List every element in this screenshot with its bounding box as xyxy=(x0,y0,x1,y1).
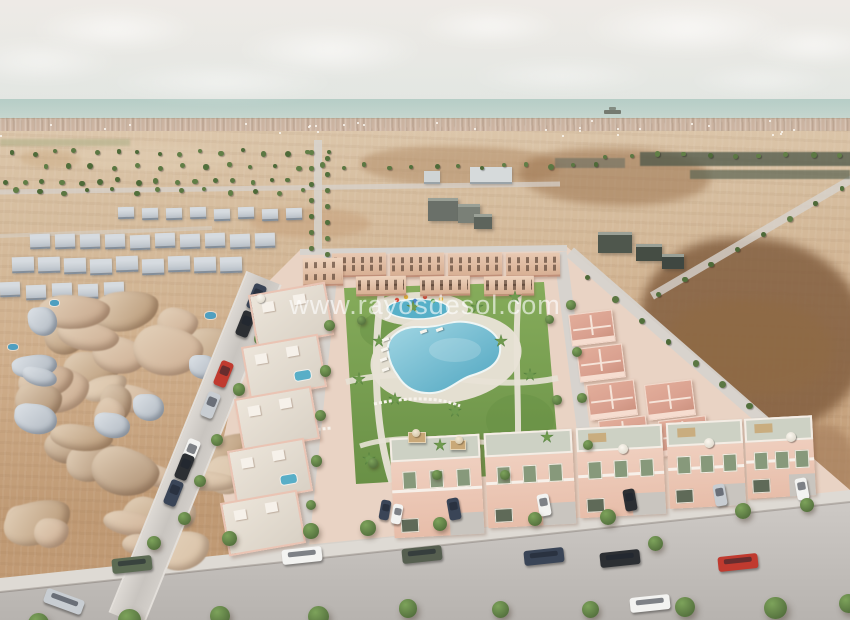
townhouse xyxy=(116,256,139,273)
roof-structure xyxy=(247,405,261,417)
field-tree xyxy=(253,189,258,194)
shuttered-window xyxy=(754,452,769,471)
parked-car xyxy=(401,545,442,564)
field-tree xyxy=(95,150,100,155)
tree xyxy=(577,393,587,403)
townhouse xyxy=(30,234,51,250)
field-tree xyxy=(309,230,314,235)
field-tree xyxy=(228,190,234,196)
backyard-pool xyxy=(50,300,59,306)
garage-door xyxy=(753,479,772,494)
palm-tree xyxy=(388,392,402,406)
distant-building xyxy=(363,124,365,126)
tree xyxy=(194,475,206,487)
parked-car xyxy=(717,553,758,572)
townhouse xyxy=(286,208,302,221)
tree xyxy=(360,520,376,536)
existing-roof-mesh xyxy=(133,394,165,421)
townhouse xyxy=(64,258,87,275)
field-tree xyxy=(325,188,330,193)
townhouse xyxy=(118,207,134,220)
field-tree xyxy=(85,188,89,192)
field-tree xyxy=(39,179,44,184)
field-tree xyxy=(87,163,93,169)
distant-building xyxy=(545,129,547,131)
field-tree xyxy=(37,189,43,195)
tree xyxy=(178,512,191,525)
distant-building xyxy=(562,135,564,137)
field-tree xyxy=(325,220,330,225)
tree xyxy=(324,320,335,331)
field-tree xyxy=(79,181,85,187)
car-window xyxy=(606,552,634,560)
field-tree xyxy=(309,166,314,171)
townhouse xyxy=(90,258,113,275)
car-window xyxy=(118,558,146,566)
shuttered-window xyxy=(639,458,654,477)
field-tree xyxy=(158,166,163,171)
villa-pitched-roof xyxy=(576,343,626,382)
terrace-parasol xyxy=(618,444,628,454)
field-tree xyxy=(97,179,103,185)
distant-building xyxy=(639,128,641,130)
field-tree xyxy=(327,150,332,155)
tree xyxy=(315,410,326,421)
apartment-block xyxy=(506,253,560,278)
cloud xyxy=(105,62,340,102)
villa-facade xyxy=(576,424,667,518)
tree xyxy=(368,458,378,468)
field-tree xyxy=(153,178,159,184)
field-tree xyxy=(198,149,202,153)
field-tree xyxy=(230,178,235,183)
field-tree xyxy=(71,148,76,153)
townhouse xyxy=(26,285,47,301)
field-tree xyxy=(59,180,64,185)
car-window xyxy=(219,365,231,377)
field-tree xyxy=(270,178,275,183)
field-tree xyxy=(285,151,291,157)
townhouse xyxy=(155,233,176,249)
tree xyxy=(600,509,616,525)
tree xyxy=(308,606,329,620)
field-tree xyxy=(325,156,330,161)
field-tree xyxy=(840,186,845,191)
field-tree xyxy=(681,152,686,157)
parked-car xyxy=(281,546,322,565)
field-tree xyxy=(61,191,67,197)
backyard-pool xyxy=(205,312,216,319)
grey-building xyxy=(636,244,662,261)
car-window xyxy=(179,458,191,470)
townhouse xyxy=(262,208,278,221)
field-tree xyxy=(811,152,817,158)
roof-terrace xyxy=(484,429,573,458)
tree xyxy=(399,599,418,618)
townhouse xyxy=(105,234,126,250)
roof-structure xyxy=(279,397,293,409)
industrial-strip xyxy=(555,158,625,168)
field-tree xyxy=(735,247,741,253)
field-tree xyxy=(309,150,314,155)
warehouse-building xyxy=(424,171,440,184)
townhouse xyxy=(180,234,201,250)
field-tree xyxy=(175,180,180,185)
apartment-block xyxy=(390,253,444,278)
sun-lounger xyxy=(420,329,428,334)
field-tree xyxy=(746,403,752,409)
tree xyxy=(210,606,230,620)
townhouse xyxy=(205,232,226,248)
tree xyxy=(500,470,510,480)
field-tree xyxy=(594,162,599,167)
distant-building xyxy=(315,125,317,127)
distant-building xyxy=(708,125,710,127)
field-tree xyxy=(213,178,218,183)
garage-door xyxy=(401,518,420,533)
field-tree xyxy=(325,252,330,257)
field-tree xyxy=(248,165,253,170)
private-pool xyxy=(294,370,311,382)
private-pool xyxy=(280,474,297,486)
townhouse xyxy=(38,257,61,274)
field-tree xyxy=(320,162,326,168)
field-tree xyxy=(409,165,414,170)
field-tree xyxy=(202,187,206,191)
cloud xyxy=(465,58,660,94)
field-tree xyxy=(285,178,290,183)
field-tree xyxy=(309,198,314,203)
field-tree xyxy=(203,164,209,170)
car-window xyxy=(724,556,752,564)
terrace-parasol xyxy=(786,432,796,442)
roof-ridge xyxy=(598,349,603,371)
field-tree xyxy=(708,262,714,268)
field-tree xyxy=(682,277,687,282)
field-tree xyxy=(3,180,8,185)
field-tree xyxy=(309,214,314,219)
roof-ridge xyxy=(590,315,594,335)
car-window xyxy=(408,548,436,556)
townhouse xyxy=(142,207,158,220)
distant-building xyxy=(591,120,593,122)
car-window xyxy=(530,550,558,558)
field-tree xyxy=(112,166,118,172)
field-tree xyxy=(733,154,738,159)
terrace-parasol xyxy=(704,438,714,448)
cloud xyxy=(685,64,840,96)
field-tree xyxy=(296,166,302,172)
field-tree xyxy=(612,296,619,303)
car-window xyxy=(51,592,79,607)
tree xyxy=(311,455,323,467)
distant-building xyxy=(617,134,619,136)
car-window xyxy=(393,507,401,515)
field-tree xyxy=(603,155,607,159)
distant-building xyxy=(579,130,581,132)
field-tree xyxy=(227,162,232,167)
terrace-pergola xyxy=(754,423,772,433)
shuttered-window xyxy=(522,465,537,484)
townhouse xyxy=(255,233,276,249)
shuttered-window xyxy=(795,449,810,468)
tree xyxy=(764,597,787,620)
tree xyxy=(675,597,695,617)
townhouse xyxy=(238,207,254,220)
shuttered-window xyxy=(588,461,603,480)
distant-building xyxy=(308,126,310,128)
shuttered-window xyxy=(774,451,789,470)
distant-building xyxy=(279,132,281,134)
field-tree xyxy=(192,179,198,185)
distant-building xyxy=(691,123,693,125)
field-tree xyxy=(761,232,766,237)
field-tree xyxy=(218,151,223,156)
roof-structure xyxy=(261,301,275,313)
car-window xyxy=(288,549,316,557)
distant-building xyxy=(104,128,106,130)
townhouse xyxy=(220,256,243,273)
field-tree xyxy=(387,166,391,170)
sun-lounger xyxy=(382,367,390,372)
car-window xyxy=(797,481,807,490)
townhouse xyxy=(230,233,251,249)
car-window xyxy=(449,501,459,510)
parked-car xyxy=(599,549,640,568)
townhouse xyxy=(214,208,230,221)
distant-building xyxy=(579,127,581,129)
shuttered-window xyxy=(722,453,737,472)
grey-building xyxy=(474,214,492,229)
palm-tree xyxy=(352,372,366,386)
field-tree xyxy=(325,172,330,177)
palm-tree xyxy=(523,368,537,382)
distant-building xyxy=(245,123,247,125)
apartment-windows xyxy=(508,257,558,264)
townhouse xyxy=(0,282,20,298)
garden-parasol xyxy=(455,436,463,444)
field-tree xyxy=(456,164,460,168)
distant-building xyxy=(436,122,438,124)
field-tree xyxy=(117,149,122,154)
backyard-pool xyxy=(8,344,18,350)
apartment-windows xyxy=(392,265,442,272)
garage-door xyxy=(495,508,514,523)
shuttered-window xyxy=(614,460,629,479)
field-tree xyxy=(134,191,140,197)
shuttered-window xyxy=(402,471,417,490)
field-tree xyxy=(33,152,39,158)
distant-building xyxy=(781,131,783,133)
driveway xyxy=(633,492,667,516)
apartment-windows xyxy=(304,262,341,269)
driveway-car xyxy=(378,499,391,520)
aerial-render: www.rayosdesol.com xyxy=(0,0,850,620)
shuttered-window xyxy=(699,455,714,474)
townhouse xyxy=(80,233,101,249)
shuttered-window xyxy=(549,463,564,482)
distant-building xyxy=(474,128,476,130)
distant-building xyxy=(769,120,771,122)
sun-lounger xyxy=(381,347,389,352)
townhouse xyxy=(55,233,76,249)
tree xyxy=(735,503,751,519)
apartment-windows xyxy=(392,257,442,264)
palm-tree xyxy=(494,334,508,348)
townhouse xyxy=(142,258,165,275)
field-tree xyxy=(23,180,28,185)
tree xyxy=(432,470,442,480)
villa-facade xyxy=(666,419,746,509)
roof-structure xyxy=(265,501,279,513)
townhouse xyxy=(166,208,182,221)
apartment-windows xyxy=(508,265,558,272)
field-tree xyxy=(66,163,72,169)
tree xyxy=(303,523,319,539)
villa-pitched-roof xyxy=(644,379,696,421)
field-tree xyxy=(655,151,661,157)
field-tree xyxy=(179,188,184,193)
tree xyxy=(839,594,850,613)
garden-parasol xyxy=(412,429,420,437)
garage-door xyxy=(675,489,694,504)
field-tree xyxy=(656,292,661,297)
distant-building xyxy=(780,133,782,135)
field-tree xyxy=(277,191,282,196)
warehouse-building xyxy=(470,167,512,184)
roof-ridge xyxy=(609,385,614,409)
field-tree xyxy=(756,154,760,158)
cloud xyxy=(415,6,565,46)
field-tree xyxy=(719,381,726,388)
field-tree xyxy=(115,177,120,182)
distant-building xyxy=(0,135,2,137)
field-tree xyxy=(135,163,140,168)
field-tree xyxy=(630,154,634,158)
tree xyxy=(233,383,245,395)
tree xyxy=(492,601,509,618)
shuttered-window xyxy=(677,456,692,475)
distant-building xyxy=(617,128,619,130)
field-tree xyxy=(136,180,142,186)
field-tree xyxy=(548,164,554,170)
roof-structure xyxy=(240,457,254,469)
grey-building xyxy=(662,254,684,269)
field-tree xyxy=(301,188,305,192)
villa-roof-terrace xyxy=(220,490,306,557)
apartment-windows xyxy=(450,257,500,264)
townhouse xyxy=(130,234,151,250)
field-tree xyxy=(261,151,267,157)
car-window xyxy=(381,503,389,511)
parked-car xyxy=(43,588,86,616)
field-tree xyxy=(787,216,793,222)
field-tree xyxy=(435,164,440,169)
field-tree xyxy=(639,318,646,325)
distant-building xyxy=(793,129,795,131)
distant-building xyxy=(772,134,774,136)
villa-pitched-roof xyxy=(586,379,638,421)
parked-car xyxy=(523,547,564,566)
apartment-windows xyxy=(305,274,342,281)
car-window xyxy=(539,497,549,506)
townhouse xyxy=(190,206,206,219)
grey-building xyxy=(428,198,458,221)
sun-lounger xyxy=(380,357,388,362)
roof-parasol xyxy=(256,294,265,303)
tree xyxy=(28,613,49,620)
roof-structure xyxy=(254,353,268,365)
field-tree xyxy=(585,275,590,280)
townhouse xyxy=(194,257,217,274)
tree xyxy=(582,601,599,618)
roof-structure xyxy=(272,449,286,461)
villa-pitched-roof xyxy=(568,309,616,346)
field-tree xyxy=(362,162,366,166)
tree xyxy=(320,365,332,377)
car-window xyxy=(186,443,198,455)
car-window xyxy=(206,395,218,407)
roof-structure xyxy=(286,345,300,357)
tree xyxy=(648,536,663,551)
field-tree xyxy=(44,164,49,169)
industrial-strip xyxy=(640,152,850,166)
field-tree xyxy=(177,152,182,157)
distant-building xyxy=(50,124,52,126)
terrace-pergola xyxy=(677,428,695,438)
car-window xyxy=(715,487,725,496)
existing-house-mesh xyxy=(33,517,70,549)
palm-tree xyxy=(448,404,462,418)
field-tree xyxy=(13,187,19,193)
car-window xyxy=(636,597,664,605)
field-tree xyxy=(666,339,672,345)
field-tree xyxy=(135,150,139,154)
distant-building xyxy=(357,122,359,124)
apartment-block xyxy=(448,253,502,278)
sun-lounger xyxy=(382,337,390,342)
car-window xyxy=(625,492,635,501)
field-tree xyxy=(241,148,245,152)
tree xyxy=(800,498,814,512)
sun-lounger xyxy=(436,327,444,332)
car-window xyxy=(169,483,181,495)
field-tree xyxy=(693,360,700,367)
field-tree xyxy=(158,152,162,156)
tree xyxy=(566,300,576,310)
shuttered-window xyxy=(456,468,471,487)
field-tree xyxy=(251,180,256,185)
roof-structure xyxy=(233,509,247,521)
parked-car xyxy=(629,594,670,613)
industrial-strip xyxy=(690,170,850,179)
distant-building xyxy=(343,124,345,126)
field-tree xyxy=(110,187,114,191)
field-tree xyxy=(53,149,57,153)
tree xyxy=(552,395,562,405)
tree xyxy=(572,347,582,357)
watermark: www.rayosdesol.com xyxy=(289,290,561,321)
field-tree xyxy=(342,166,346,170)
field-tree xyxy=(325,236,330,241)
roof-ridge xyxy=(667,385,672,409)
grey-building xyxy=(598,232,632,253)
roof-terrace xyxy=(389,434,480,463)
tree xyxy=(306,500,316,510)
tree xyxy=(222,531,237,546)
field-tree xyxy=(180,163,185,168)
field-tree xyxy=(273,164,277,168)
